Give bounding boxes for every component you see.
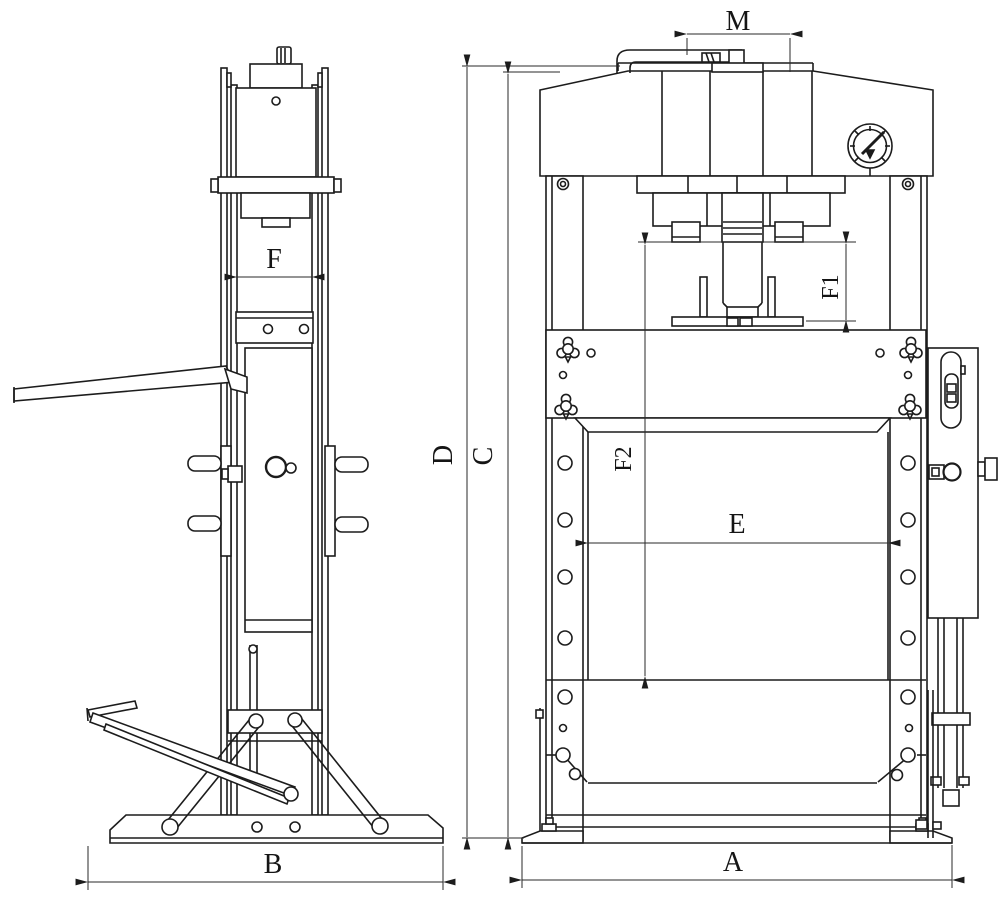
dim-label-B: B: [264, 849, 283, 880]
dim-label-D: D: [428, 445, 459, 465]
ram-cylinder-assembly: [637, 176, 845, 326]
hydraulic-press-drawing: M F F1 F2 D C E B A: [0, 0, 1000, 902]
column-holes: [558, 456, 915, 732]
technical-drawing-canvas: M F F1 F2 D C E B A: [0, 0, 1000, 902]
front-view: [522, 50, 997, 843]
dim-label-F1: F1: [818, 274, 844, 299]
pump-handle-socket: [617, 50, 763, 73]
lower-platen: [546, 680, 926, 827]
dim-label-F: F: [266, 244, 282, 275]
side-view: [14, 47, 443, 843]
hydraulic-pump-unit: [916, 348, 997, 838]
dim-label-M: M: [726, 6, 751, 37]
dim-label-F2: F2: [611, 446, 637, 471]
front-columns: [546, 176, 927, 840]
side-base: [110, 815, 443, 843]
pump-handle-lever: [14, 366, 247, 403]
work-table: [546, 330, 926, 680]
dim-label-E: E: [728, 509, 745, 540]
dim-label-C: C: [468, 447, 499, 466]
front-feet: [522, 708, 952, 843]
dim-label-A: A: [723, 847, 744, 878]
